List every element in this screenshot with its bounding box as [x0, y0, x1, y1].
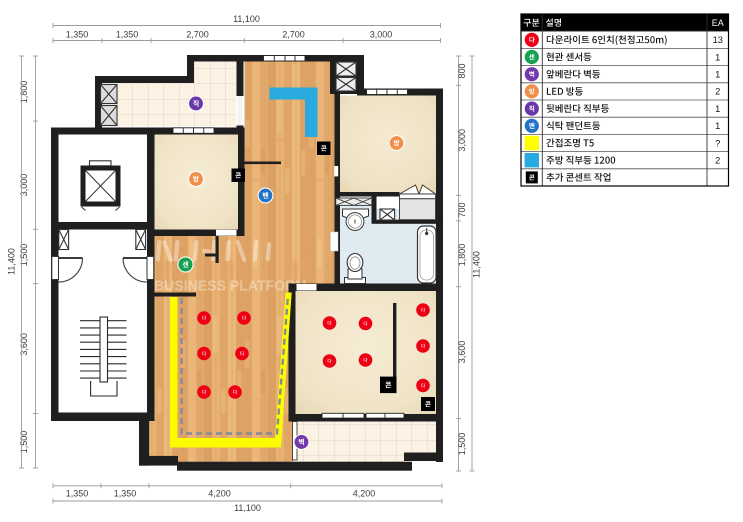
svg-text:1,800: 1,800 [19, 81, 29, 104]
svg-text:3,000: 3,000 [457, 129, 467, 152]
svg-text:1,500: 1,500 [457, 433, 467, 456]
svg-text:1,350: 1,350 [114, 489, 137, 499]
svg-text:11,400: 11,400 [7, 248, 17, 275]
svg-text:2,700: 2,700 [282, 30, 305, 40]
svg-text:2,700: 2,700 [186, 30, 209, 40]
svg-text:1: 1 [715, 104, 720, 114]
svg-text:11,100: 11,100 [234, 503, 261, 513]
svg-text:3,000: 3,000 [370, 30, 393, 40]
svg-text:3,000: 3,000 [19, 174, 29, 197]
svg-text:700: 700 [457, 202, 467, 217]
svg-text:1,500: 1,500 [19, 431, 29, 454]
svg-text:EA: EA [712, 18, 724, 28]
svg-text:1: 1 [715, 52, 720, 62]
svg-text:11,400: 11,400 [472, 251, 482, 278]
svg-text:4,200: 4,200 [208, 489, 231, 499]
svg-text:13: 13 [713, 35, 723, 45]
svg-text:4,200: 4,200 [353, 489, 376, 499]
svg-text:11,100: 11,100 [233, 14, 260, 24]
svg-text:1,350: 1,350 [116, 30, 139, 40]
svg-text:1,500: 1,500 [19, 244, 29, 267]
svg-text:2: 2 [715, 156, 720, 166]
svg-text:1,350: 1,350 [66, 30, 89, 40]
svg-text:1: 1 [715, 121, 720, 131]
svg-text:3,600: 3,600 [457, 341, 467, 364]
svg-text:1,350: 1,350 [66, 489, 89, 499]
svg-text:1: 1 [715, 70, 720, 80]
svg-text:BUSINESS PLATFORM: BUSINESS PLATFORM [154, 278, 307, 295]
svg-text:800: 800 [457, 63, 467, 78]
svg-text:3,600: 3,600 [19, 333, 29, 356]
svg-text:?: ? [715, 138, 720, 148]
svg-text:2: 2 [715, 87, 720, 97]
svg-text:1,800: 1,800 [457, 244, 467, 267]
